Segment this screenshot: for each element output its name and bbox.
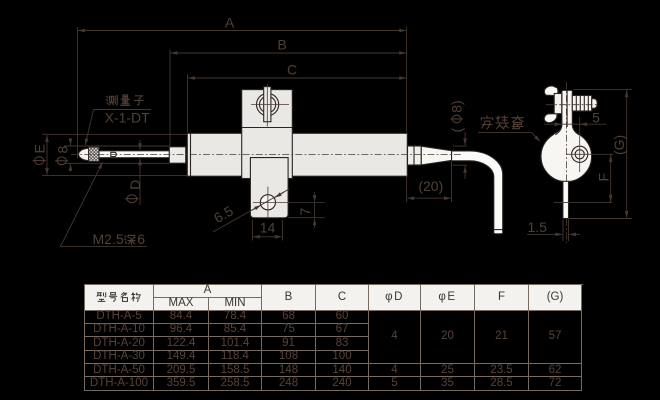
svg-text:B: B	[277, 37, 286, 53]
svg-text:D: D	[127, 180, 143, 190]
svg-text:(: (	[448, 128, 464, 133]
svg-text:(G): (G)	[611, 135, 627, 155]
svg-text:F: F	[596, 173, 612, 182]
svg-text:8): 8)	[448, 100, 464, 112]
svg-text:E: E	[32, 144, 48, 153]
svg-text:C: C	[287, 62, 297, 78]
svg-text:X-1-DT: X-1-DT	[105, 109, 151, 125]
svg-text:14: 14	[260, 219, 276, 235]
svg-text:5: 5	[592, 110, 600, 126]
svg-text:7: 7	[297, 208, 313, 216]
svg-text:M2.5: M2.5	[93, 231, 124, 247]
svg-text:6: 6	[137, 231, 145, 247]
svg-text:(20): (20)	[418, 178, 443, 194]
svg-text:8: 8	[55, 146, 71, 154]
svg-text:1.5: 1.5	[528, 219, 548, 235]
svg-text:A: A	[225, 15, 235, 31]
